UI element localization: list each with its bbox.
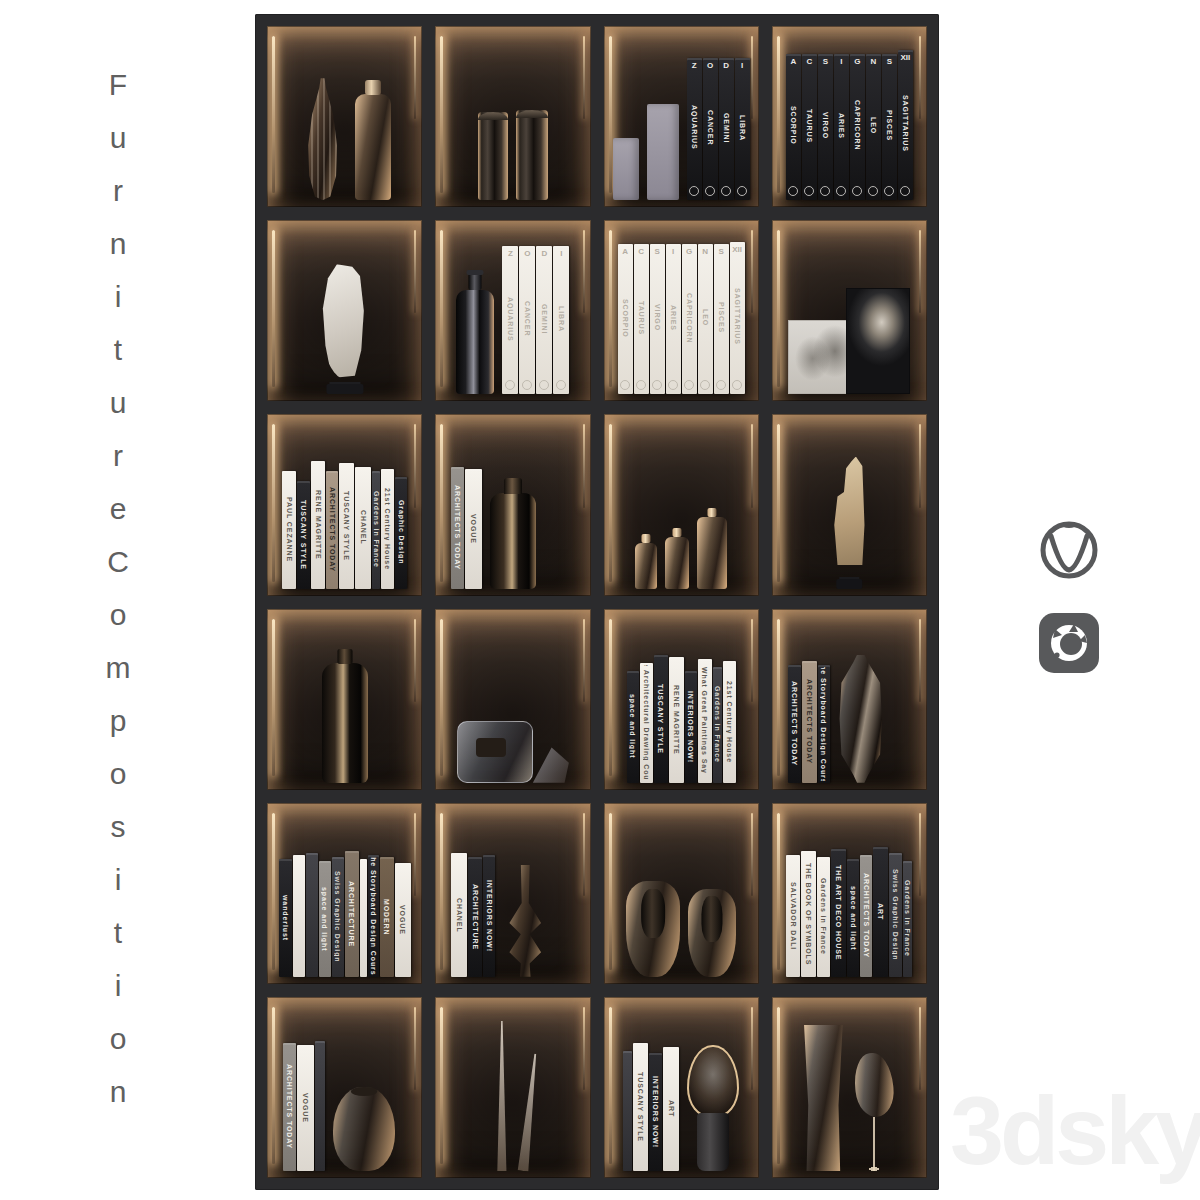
book-spine-title: CHANEL xyxy=(456,855,463,975)
cell-contents: ASCORPIOCTAURUSSVIRGOIARIESGCAPRICORNNLE… xyxy=(604,220,759,401)
driftwood xyxy=(820,457,878,589)
book-spine: ART xyxy=(873,847,888,977)
book-spine-title: The Storyboard Design Course xyxy=(370,857,377,975)
shelf-cell-r4-c4: ARCHITECTS TODAYARCHITECTS TODAYThe Stor… xyxy=(772,609,927,790)
book-spine-title: ART xyxy=(668,1049,675,1169)
shelf-cell-r2-c4 xyxy=(772,220,927,401)
watermark: 3dsky xyxy=(950,1082,1200,1179)
book-spine: XIISAGITTARIUS xyxy=(730,242,745,394)
amber-bottle xyxy=(355,94,391,200)
cell-contents: CHANELARCHITECTUREINTERIORS NOW! xyxy=(435,803,590,984)
render-engine-logos xyxy=(1036,512,1102,676)
book-spine-title: THE ART DECO HOUSE xyxy=(835,851,842,975)
book-spine-title: space and light xyxy=(850,861,857,975)
book-spine xyxy=(315,1041,325,1171)
cell-contents xyxy=(267,26,422,207)
cell-contents xyxy=(604,803,759,984)
book-spine-title: GEMINI xyxy=(541,261,548,376)
shelf-cell-r1-c4: ASCORPIOCTAURUSSVIRGOIARIESGCAPRICORNNLE… xyxy=(772,26,927,207)
glass-bottle xyxy=(697,517,727,589)
gray-box xyxy=(613,138,639,200)
book-spine-title: space and light xyxy=(629,673,636,781)
black-bottle xyxy=(456,290,494,394)
zodiac-ring-icon xyxy=(684,380,694,390)
glass-vessel-capped xyxy=(688,889,736,977)
cell-contents xyxy=(267,609,422,790)
book-spine-letter: C xyxy=(806,58,812,66)
book-group: TUSCANY STYLEINTERIORS NOW!ART xyxy=(623,1043,679,1171)
dark-bottle-round xyxy=(490,493,536,589)
book-spine: ARCHITECTS TODAY xyxy=(283,1043,296,1171)
book-spine-title: Swiss Graphic Design xyxy=(334,859,341,975)
book-spine-letter: S xyxy=(718,248,723,256)
book-spine-title: VIRGO xyxy=(654,259,661,376)
book-spine-letter: S xyxy=(887,58,892,66)
book-spine-title: SAGITTARIUS xyxy=(902,65,909,182)
book-spine-title: SCORPIO xyxy=(622,259,629,376)
book-spine: 21st Century House xyxy=(381,469,394,589)
book-spine: ARCHITECTS TODAY xyxy=(788,665,801,783)
book-spine-title: LIBRA xyxy=(558,261,565,376)
shelf-cell-r5-c2: CHANELARCHITECTUREINTERIORS NOW! xyxy=(435,803,590,984)
book-spine: SPISCES xyxy=(714,244,729,394)
zodiac-ring-icon xyxy=(705,186,715,196)
side-label-letter: u xyxy=(110,123,127,153)
book-spine-letter: D xyxy=(541,250,547,258)
book-spine-title: 21st Century House xyxy=(384,471,391,587)
glass-spike-lean xyxy=(516,1053,542,1172)
book-spine-title: PISCES xyxy=(886,69,893,182)
book-spine: PAUL CEZANNE xyxy=(282,471,296,589)
book-spine: Swiss Graphic Design xyxy=(889,853,902,977)
book-spine-title: VOGUE xyxy=(470,471,477,587)
dark-bottle-tall xyxy=(322,663,368,783)
book-spine: Gardens in France xyxy=(372,471,380,589)
glass-bottle xyxy=(635,543,657,589)
side-label-letter: p xyxy=(110,706,127,736)
book-spine-title: ARCHITECTS TODAY xyxy=(791,667,798,781)
zodiac-ring-icon xyxy=(788,186,798,196)
canister-dark xyxy=(516,110,548,200)
book-spine: The Storyboard Design Course xyxy=(368,855,379,977)
glass-bottle xyxy=(665,537,689,589)
book-spine-title: Gardens in France xyxy=(904,863,911,975)
book-spine: TUSCANY STYLE xyxy=(633,1043,648,1171)
corona-renderer-logo xyxy=(1036,610,1102,676)
book-spine: 21st Century House xyxy=(723,661,736,783)
mushroom-lamp xyxy=(687,1045,739,1171)
amber-fluted-vase xyxy=(299,78,347,200)
book-spine-title: ARCHITECTURE xyxy=(348,853,355,975)
zodiac-ring-icon xyxy=(804,186,814,196)
zodiac-ring-icon xyxy=(556,380,566,390)
book-spine: Gardens in France xyxy=(713,667,722,783)
book-spine-letter: S xyxy=(823,58,828,66)
side-label-letter: m xyxy=(106,653,131,683)
book-spine: The Storyboard Design Course xyxy=(818,665,830,783)
side-label-letter: e xyxy=(110,494,127,524)
book-spine: OCANCER xyxy=(519,246,535,394)
shelf-cell-r6-c4 xyxy=(772,997,927,1178)
book-group: CHANELARCHITECTUREINTERIORS NOW! xyxy=(451,853,495,977)
side-label-letter: o xyxy=(110,759,127,789)
book-spine: ILIBRA xyxy=(735,58,750,200)
shelf-cell-r3-c3 xyxy=(604,414,759,595)
book-spine-title: TUSCANY STYLE xyxy=(300,483,307,587)
book-spine: ART xyxy=(663,1047,679,1171)
book-spine: Gardens in France xyxy=(903,861,912,977)
book-spine-letter: A xyxy=(622,248,628,256)
book-spine: Gardens in France xyxy=(817,857,830,977)
book-spine xyxy=(623,1051,632,1171)
book-spine: IARIES xyxy=(834,54,849,200)
book-spine-title: ARIES xyxy=(838,69,845,182)
book-spine-letter: I xyxy=(741,62,743,70)
book-spine-title: INTERIORS NOW! xyxy=(486,857,493,975)
photo-portrait xyxy=(846,288,910,394)
book-spine-title: ARCHITECTS TODAY xyxy=(286,1045,293,1169)
cell-contents: PAUL CEZANNETUSCANY STYLERENÉ MAGRITTEAR… xyxy=(267,414,422,595)
shelf-cell-r5-c4: SALVADOR DALITHE BOOK OF SYMBOLSGardens … xyxy=(772,803,927,984)
side-label-letter: F xyxy=(109,70,127,100)
book-spine: SALVADOR DALI xyxy=(786,855,800,977)
zodiac-ring-icon xyxy=(505,380,515,390)
side-label-letter: i xyxy=(115,971,122,1001)
book-spine-title: CANCER xyxy=(524,261,531,376)
book-spine: XIISAGITTARIUS xyxy=(898,50,913,200)
book-spine-letter: XII xyxy=(732,246,742,254)
book-spine: space and light xyxy=(847,859,859,977)
book-spine-title: LEO xyxy=(702,259,709,376)
zodiac-ring-icon xyxy=(868,186,878,196)
shelf-cell-r4-c1 xyxy=(267,609,422,790)
book-spine: The Architectural Drawing Course xyxy=(640,663,653,783)
shelf-cell-r1-c1 xyxy=(267,26,422,207)
cell-contents xyxy=(772,997,927,1178)
book-spine-title: ARCHITECTS TODAY xyxy=(329,473,336,587)
book-spine: RENÉ MAGRITTE xyxy=(669,657,684,783)
book-spine: RENÉ MAGRITTE xyxy=(311,461,325,589)
glass-plaque xyxy=(457,721,533,783)
cell-contents xyxy=(267,220,422,401)
book-spine-title: TUSCANY STYLE xyxy=(343,465,350,587)
zodiac-ring-icon xyxy=(716,380,726,390)
book-spine-title: SALVADOR DALI xyxy=(790,857,797,975)
cell-contents xyxy=(604,414,759,595)
cell-contents xyxy=(435,26,590,207)
book-spine-letter: N xyxy=(870,58,876,66)
book-spine-title: AQUARIUS xyxy=(691,73,698,182)
zodiac-ring-icon xyxy=(737,186,747,196)
book-spine-title: The Storyboard Design Course xyxy=(820,667,827,781)
book-spine: TUSCANY STYLE xyxy=(654,655,668,783)
book-group: space and lightThe Architectural Drawing… xyxy=(627,655,736,783)
book-spine: IARIES xyxy=(666,244,681,394)
book-spine-title: Swiss Graphic Design xyxy=(892,855,899,975)
book-spine xyxy=(360,859,367,977)
book-spine-letter: A xyxy=(790,58,796,66)
shelf-cell-r2-c3: ASCORPIOCTAURUSSVIRGOIARIESGCAPRICORNNLE… xyxy=(604,220,759,401)
side-label-letter: r xyxy=(113,441,123,471)
book-spine-letter: G xyxy=(686,248,692,256)
book-spine-title: ARCHITECTURE xyxy=(472,859,479,975)
book-spine: ASCORPIO xyxy=(786,54,801,200)
book-spine: THE ART DECO HOUSE xyxy=(831,849,846,977)
zodiac-ring-icon xyxy=(700,380,710,390)
book-spine-title: RENÉ MAGRITTE xyxy=(673,659,680,781)
zodiac-ring-icon xyxy=(836,186,846,196)
book-spine-title: TUSCANY STYLE xyxy=(657,657,664,781)
book-spine-title: Graphic Design xyxy=(398,479,405,587)
book-spine-title: Gardens in France xyxy=(820,859,827,975)
zodiac-ring-icon xyxy=(689,186,699,196)
shelf-cell-r5-c3 xyxy=(604,803,759,984)
glass-prism xyxy=(533,743,569,783)
side-label-letter: C xyxy=(107,547,129,577)
book-spine-title: ARIES xyxy=(670,259,677,376)
book-spine: NLEO xyxy=(866,54,881,200)
book-spine-title: PAUL CEZANNE xyxy=(286,473,293,587)
book-spine-title: Gardens in France xyxy=(714,669,721,781)
book-spine-title: SCORPIO xyxy=(790,69,797,182)
book-spine: INTERIORS NOW! xyxy=(483,855,495,977)
book-spine: ARCHITECTS TODAY xyxy=(802,661,817,783)
book-spine-title: ARCHITECTS TODAY xyxy=(454,469,461,587)
shelf-cell-r3-c4 xyxy=(772,414,927,595)
cell-contents: ASCORPIOCTAURUSSVIRGOIARIESGCAPRICORNNLE… xyxy=(772,26,927,207)
book-spine: MODERN xyxy=(380,857,394,977)
book-spine-letter: N xyxy=(702,248,708,256)
book-spine-title: MODERN xyxy=(383,859,390,975)
book-spine-title: CAPRICORN xyxy=(686,259,693,376)
cell-contents xyxy=(772,414,927,595)
zodiac-ring-icon xyxy=(732,380,742,390)
glass-goblet xyxy=(852,1053,896,1171)
book-spine-title: ARCHITECTS TODAY xyxy=(806,663,813,781)
side-label-letter: o xyxy=(110,600,127,630)
zodiac-ring-icon xyxy=(620,380,630,390)
side-label-letter: s xyxy=(111,812,126,842)
book-spine-title: TAURUS xyxy=(806,69,813,182)
zodiac-ring-icon xyxy=(522,380,532,390)
book-spine-title: SAGITTARIUS xyxy=(734,257,741,376)
shelf-cell-r2-c1 xyxy=(267,220,422,401)
cell-contents: ARCHITECTS TODAYVOGUE xyxy=(435,414,590,595)
book-spine-title: AQUARIUS xyxy=(507,261,514,376)
side-label-letter: i xyxy=(115,282,122,312)
glass-vessel-capped xyxy=(626,881,680,977)
book-spine-title: The Architectural Drawing Course xyxy=(643,665,650,781)
shelf-cell-r2-c2: ZAQUARIUSOCANCERDGEMINIILIBRA xyxy=(435,220,590,401)
book-spine: CTAURUS xyxy=(802,54,817,200)
side-label-letter: t xyxy=(114,918,122,948)
book-group: ZAQUARIUSOCANCERDGEMINIILIBRA xyxy=(687,58,750,200)
book-spine-letter: XII xyxy=(900,54,910,62)
book-spine-title: TUSCANY STYLE xyxy=(637,1045,644,1169)
side-label-letter: n xyxy=(110,229,127,259)
book-spine: TUSCANY STYLE xyxy=(339,463,354,589)
zodiac-ring-icon xyxy=(852,186,862,196)
side-label-letter: u xyxy=(110,388,127,418)
book-spine: DGEMINI xyxy=(536,246,552,394)
shelf-cell-r6-c3: TUSCANY STYLEINTERIORS NOW!ART xyxy=(604,997,759,1178)
side-label-letter: i xyxy=(115,865,122,895)
book-spine: ASCORPIO xyxy=(618,244,633,394)
book-group: ASCORPIOCTAURUSSVIRGOIARIESGCAPRICORNNLE… xyxy=(786,50,913,200)
zodiac-ring-icon xyxy=(636,380,646,390)
book-spine: CHANEL xyxy=(355,467,371,589)
book-spine: space and light xyxy=(319,861,331,977)
shelf-cell-r4-c3: space and lightThe Architectural Drawing… xyxy=(604,609,759,790)
book-spine: ARCHITECTS TODAY xyxy=(326,471,338,589)
book-spine: ARCHITECTURE xyxy=(468,857,482,977)
cell-contents: wanderlustspace and lightSwiss Graphic D… xyxy=(267,803,422,984)
cell-contents: ARCHITECTS TODAYVOGUE xyxy=(267,997,422,1178)
book-group: ARCHITECTS TODAYVOGUE xyxy=(451,467,482,589)
vray-logo xyxy=(1036,512,1102,582)
side-label-letter: r xyxy=(113,176,123,206)
cell-contents xyxy=(772,220,927,401)
book-spine-title: Gardens in France xyxy=(373,473,380,587)
shelf-cell-r1-c2 xyxy=(435,26,590,207)
cell-contents: SALVADOR DALITHE BOOK OF SYMBOLSGardens … xyxy=(772,803,927,984)
book-group: ARCHITECTS TODAYARCHITECTS TODAYThe Stor… xyxy=(788,661,830,783)
book-spine-letter: D xyxy=(723,62,729,70)
book-spine: Swiss Graphic Design xyxy=(332,857,344,977)
book-spine: wanderlust xyxy=(279,859,292,977)
book-spine-letter: G xyxy=(854,58,860,66)
book-spine-title: VOGUE xyxy=(302,1047,309,1169)
book-spine-letter: O xyxy=(707,62,713,70)
book-spine: VOGUE xyxy=(465,469,482,589)
book-spine-title: ART xyxy=(877,849,884,975)
book-spine: VOGUE xyxy=(297,1045,314,1171)
book-spine-title: space and light xyxy=(321,863,328,975)
book-spine-title: ARCHITECTS TODAY xyxy=(863,857,870,975)
book-spine-title: What Great Paintings Say xyxy=(701,661,708,781)
zodiac-ring-icon xyxy=(668,380,678,390)
cell-contents xyxy=(435,609,590,790)
book-spine-letter: O xyxy=(524,250,530,258)
book-spine: ILIBRA xyxy=(553,246,569,394)
book-spine: SVIRGO xyxy=(650,244,665,394)
book-spine-title: LIBRA xyxy=(739,73,746,182)
gray-box xyxy=(647,104,679,200)
book-spine: SVIRGO xyxy=(818,54,833,200)
stone-slab xyxy=(313,264,377,394)
book-spine xyxy=(306,853,318,977)
shelf-cell-r4-c2 xyxy=(435,609,590,790)
book-spine: CHANEL xyxy=(451,853,467,977)
book-spine-title: LEO xyxy=(870,69,877,182)
book-spine-title: VIRGO xyxy=(822,69,829,182)
book-group: PAUL CEZANNETUSCANY STYLERENÉ MAGRITTEAR… xyxy=(282,461,407,589)
book-spine: TUSCANY STYLE xyxy=(297,481,310,589)
book-spine-title: RENÉ MAGRITTE xyxy=(315,463,322,587)
cell-contents xyxy=(435,997,590,1178)
shelf-cell-r5-c1: wanderlustspace and lightSwiss Graphic D… xyxy=(267,803,422,984)
glass-capsule xyxy=(838,655,884,783)
book-group: ZAQUARIUSOCANCERDGEMINIILIBRA xyxy=(502,246,569,394)
book-group: ARCHITECTS TODAYVOGUE xyxy=(283,1041,325,1171)
shelf-cell-r3-c1: PAUL CEZANNETUSCANY STYLERENÉ MAGRITTEAR… xyxy=(267,414,422,595)
book-spine: ZAQUARIUS xyxy=(502,246,518,394)
shelf-cell-r1-c3: ZAQUARIUSOCANCERDGEMINIILIBRA xyxy=(604,26,759,207)
book-spine-letter: I xyxy=(560,250,562,258)
glass-spike xyxy=(496,1021,508,1171)
book-spine-title: TAURUS xyxy=(638,259,645,376)
shelf-cell-r6-c1: ARCHITECTS TODAYVOGUE xyxy=(267,997,422,1178)
book-spine-title: PISCES xyxy=(718,259,725,376)
book-spine: GCAPRICORN xyxy=(682,244,697,394)
book-spine-title: CANCER xyxy=(707,73,714,182)
zodiac-ring-icon xyxy=(884,186,894,196)
book-spine: ARCHITECTS TODAY xyxy=(451,467,464,589)
book-spine-letter: Z xyxy=(508,250,513,258)
render-canvas: FurnitureComposition ZAQUARIUSOCANCERDGE… xyxy=(0,0,1200,1200)
book-group: SALVADOR DALITHE BOOK OF SYMBOLSGardens … xyxy=(786,847,912,977)
zodiac-ring-icon xyxy=(539,380,549,390)
shelf-unit: ZAQUARIUSOCANCERDGEMINIILIBRAASCORPIOCTA… xyxy=(255,14,939,1190)
book-spine-letter: C xyxy=(638,248,644,256)
book-spine-title: INTERIORS NOW! xyxy=(652,1055,659,1169)
side-label-letter: n xyxy=(110,1077,127,1107)
cell-contents: ZAQUARIUSOCANCERDGEMINIILIBRA xyxy=(604,26,759,207)
book-spine-letter: Z xyxy=(692,62,697,70)
glass-candlestick xyxy=(503,865,547,977)
book-spine: space and light xyxy=(627,671,639,783)
zodiac-ring-icon xyxy=(721,186,731,196)
book-spine-title: VOGUE xyxy=(399,865,406,975)
book-spine-title: CAPRICORN xyxy=(854,69,861,182)
book-spine: ZAQUARIUS xyxy=(687,58,702,200)
shelf-cell-r6-c2 xyxy=(435,997,590,1178)
glass-cylinder-tall xyxy=(802,1025,844,1171)
glass-vase-round xyxy=(333,1087,395,1171)
book-spine-title: THE BOOK OF SYMBOLS xyxy=(805,853,812,975)
book-spine: INTERIORS NOW! xyxy=(649,1053,662,1171)
book-spine-letter: I xyxy=(840,58,842,66)
book-spine xyxy=(293,855,305,977)
book-spine: ARCHITECTURE xyxy=(345,851,359,977)
book-spine-letter: S xyxy=(654,248,659,256)
side-label-letter: o xyxy=(110,1024,127,1054)
canister-dark xyxy=(478,112,508,200)
shelf-cell-r3-c2: ARCHITECTS TODAYVOGUE xyxy=(435,414,590,595)
book-spine: ARCHITECTS TODAY xyxy=(860,855,872,977)
book-spine: NLEO xyxy=(698,244,713,394)
book-spine: VOGUE xyxy=(395,863,411,977)
book-group: ASCORPIOCTAURUSSVIRGOIARIESGCAPRICORNNLE… xyxy=(618,242,745,394)
book-spine-title: wanderlust xyxy=(282,861,289,975)
book-group: wanderlustspace and lightSwiss Graphic D… xyxy=(279,851,411,977)
book-spine: DGEMINI xyxy=(719,58,734,200)
cell-contents: TUSCANY STYLEINTERIORS NOW!ART xyxy=(604,997,759,1178)
book-spine: GCAPRICORN xyxy=(850,54,865,200)
book-spine: What Great Paintings Say xyxy=(698,659,712,783)
zodiac-ring-icon xyxy=(900,186,910,196)
book-spine-letter: I xyxy=(672,248,674,256)
book-spine: OCANCER xyxy=(703,58,718,200)
book-spine-title: INTERIORS NOW! xyxy=(687,673,694,781)
zodiac-ring-icon xyxy=(652,380,662,390)
book-spine: INTERIORS NOW! xyxy=(685,671,697,783)
side-label-letter: t xyxy=(114,335,122,365)
book-spine: Graphic Design xyxy=(395,477,407,589)
cell-contents: ZAQUARIUSOCANCERDGEMINIILIBRA xyxy=(435,220,590,401)
cell-contents: space and lightThe Architectural Drawing… xyxy=(604,609,759,790)
book-spine-title: GEMINI xyxy=(723,73,730,182)
